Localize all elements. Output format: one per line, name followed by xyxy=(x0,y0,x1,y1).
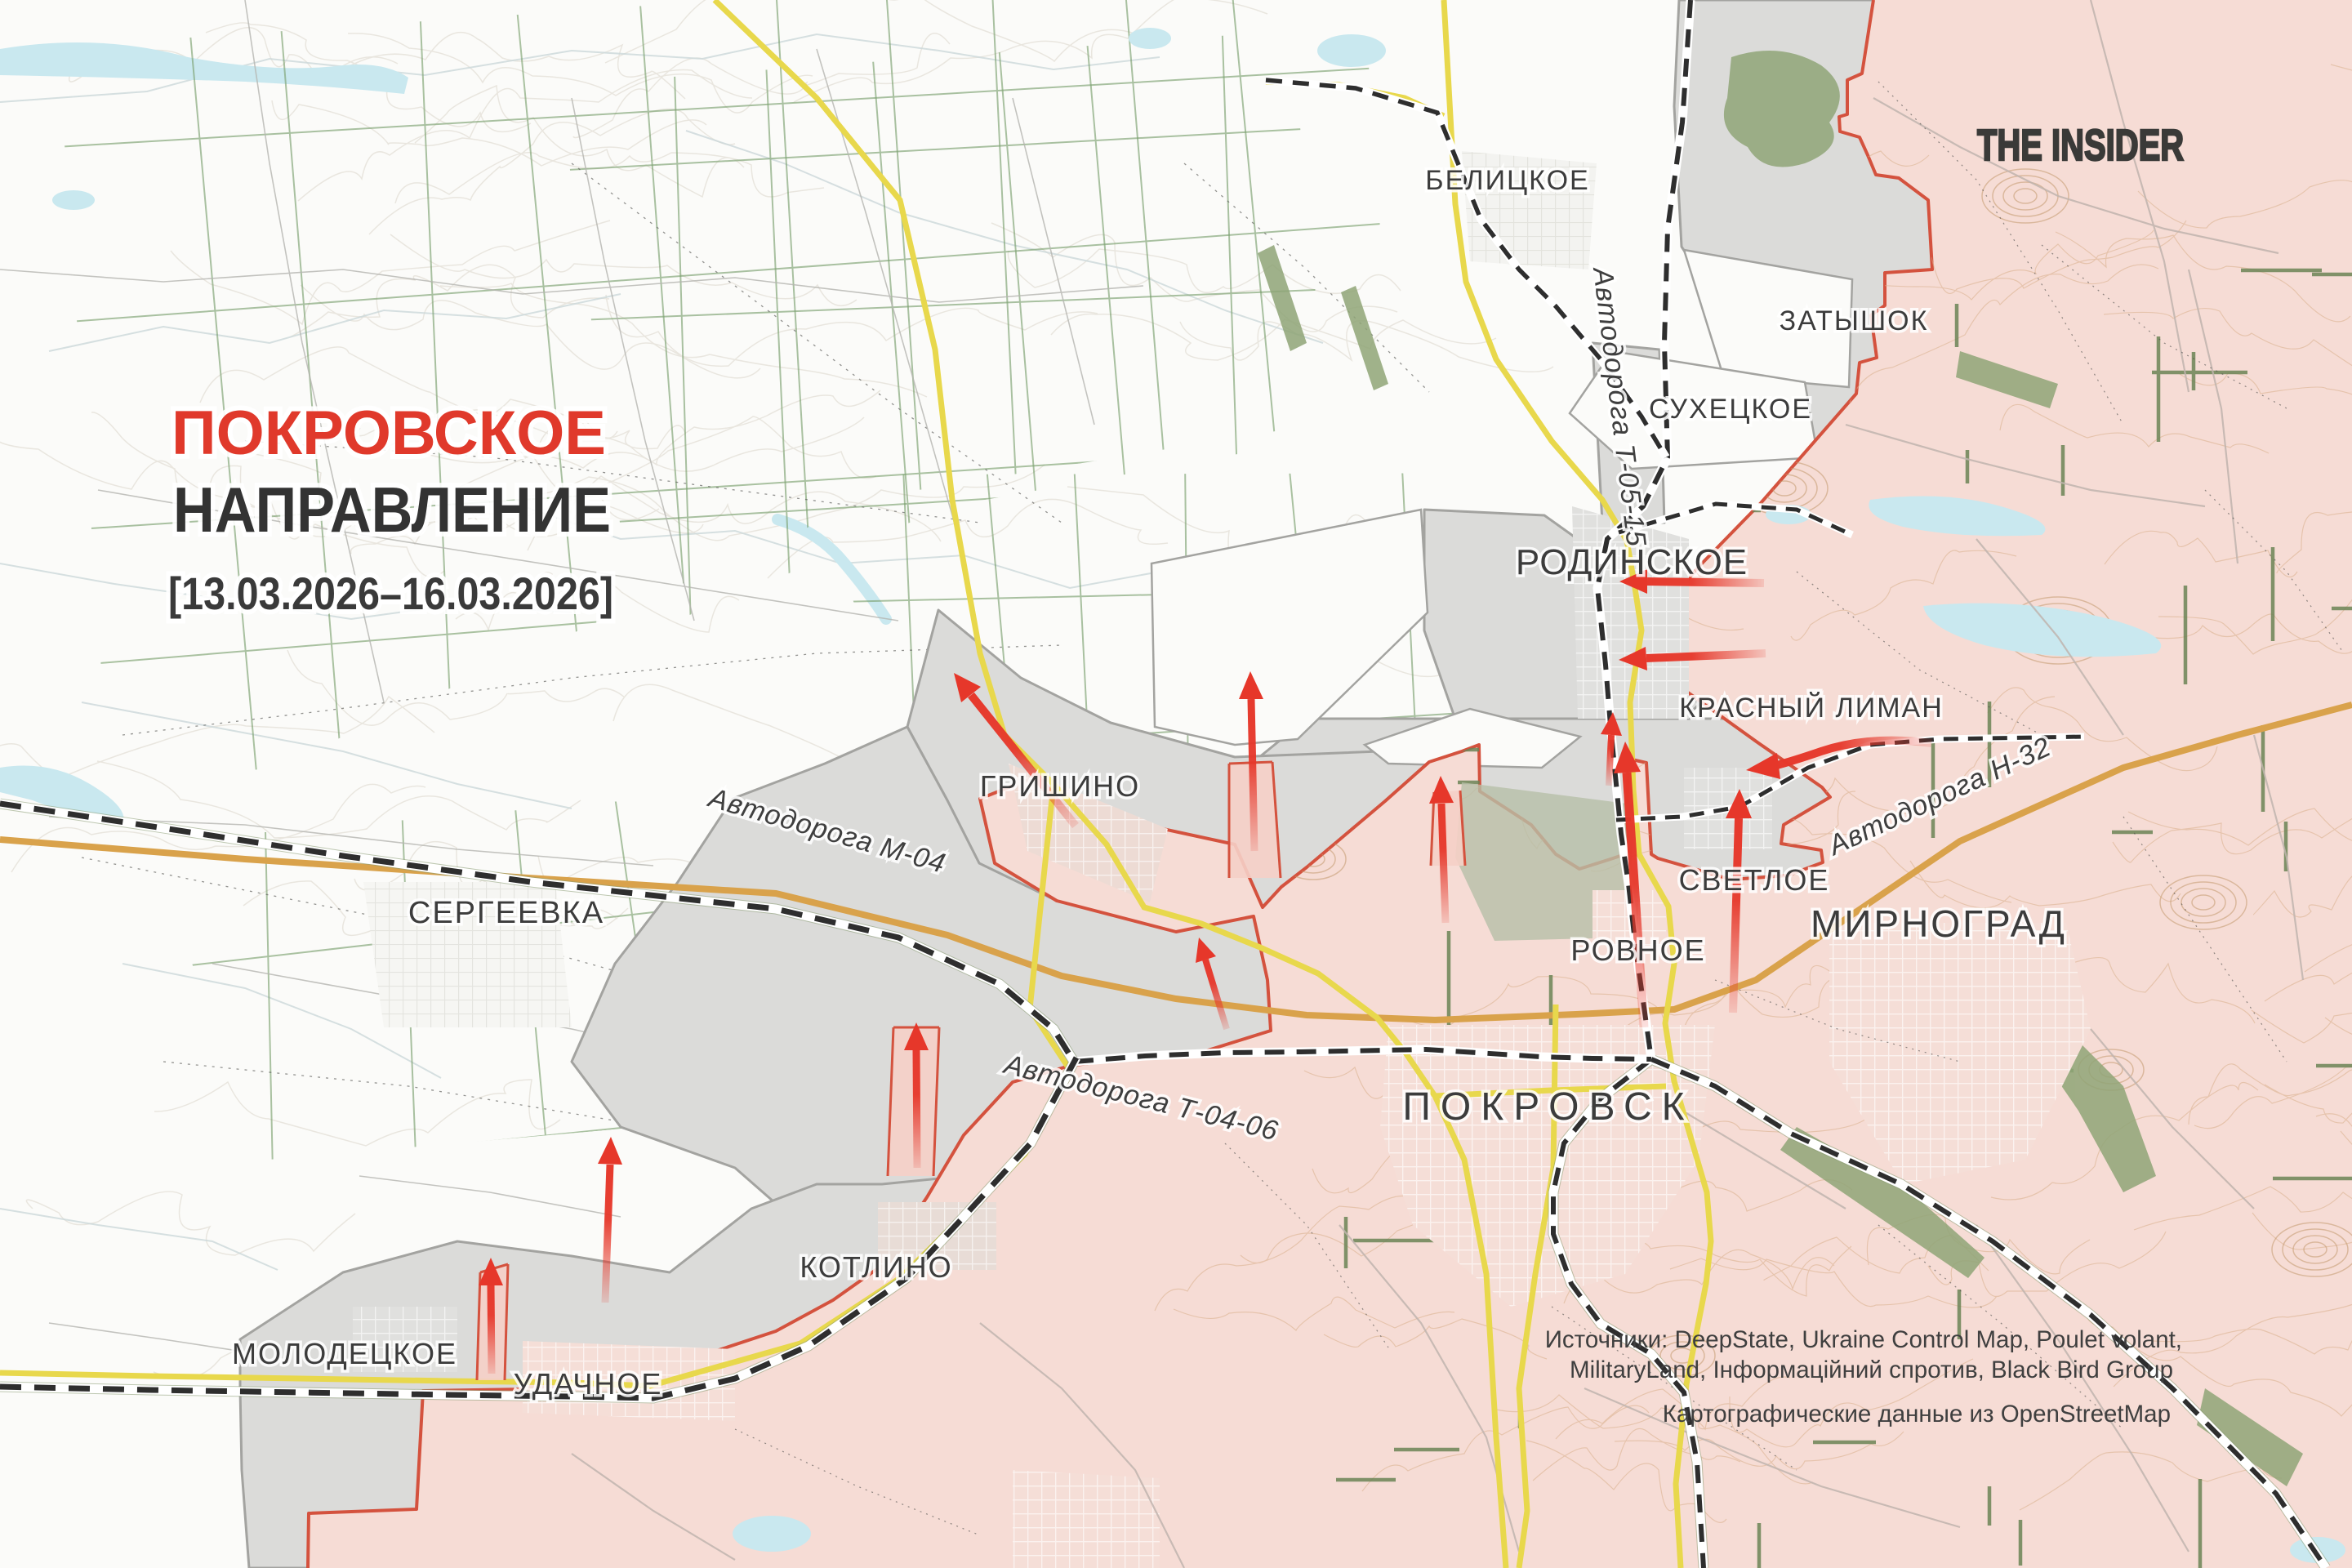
svg-text:[13.03.2026–16.03.2026]: [13.03.2026–16.03.2026] xyxy=(168,568,613,619)
svg-text:УДАЧНОЕ: УДАЧНОЕ xyxy=(514,1367,663,1401)
svg-text:THE INSIDER: THE INSIDER xyxy=(1977,121,2184,170)
svg-text:БЕЛИЦКОЕ: БЕЛИЦКОЕ xyxy=(1425,165,1589,196)
svg-text:КОТЛИНО: КОТЛИНО xyxy=(800,1250,952,1284)
svg-text:Источники: DeepState, Ukraine: Источники: DeepState, Ukraine Control Ma… xyxy=(1545,1326,2182,1353)
svg-text:СУХЕЦКОЕ: СУХЕЦКОЕ xyxy=(1649,394,1812,425)
svg-text:МИРНОГРАД: МИРНОГРАД xyxy=(1811,902,2067,945)
svg-text:ЗАТЫШОК: ЗАТЫШОК xyxy=(1780,305,1929,336)
svg-text:НАПРАВЛЕНИЕ: НАПРАВЛЕНИЕ xyxy=(173,474,611,546)
svg-text:Картографические данные из Ope: Картографические данные из OpenStreetMap xyxy=(1663,1401,2171,1428)
svg-text:MilitaryLand, Інформаційний сп: MilitaryLand, Інформаційний спротив, Bla… xyxy=(1570,1356,2173,1383)
svg-text:СЕРГЕЕВКА: СЕРГЕЕВКА xyxy=(408,896,604,930)
svg-text:ГРИШИНО: ГРИШИНО xyxy=(980,769,1140,803)
svg-text:КРАСНЫЙ ЛИМАН: КРАСНЫЙ ЛИМАН xyxy=(1679,693,1944,724)
svg-text:РОДИНСКОЕ: РОДИНСКОЕ xyxy=(1516,542,1748,582)
svg-text:ПОКРОВСКОЕ: ПОКРОВСКОЕ xyxy=(171,399,606,468)
svg-text:РОВНОЕ: РОВНОЕ xyxy=(1570,933,1705,967)
svg-text:ПОКРОВСК: ПОКРОВСК xyxy=(1402,1085,1694,1129)
svg-text:СВЕТЛОЕ: СВЕТЛОЕ xyxy=(1679,863,1830,897)
svg-text:МОЛОДЕЦКОЕ: МОЛОДЕЦКОЕ xyxy=(232,1337,457,1370)
